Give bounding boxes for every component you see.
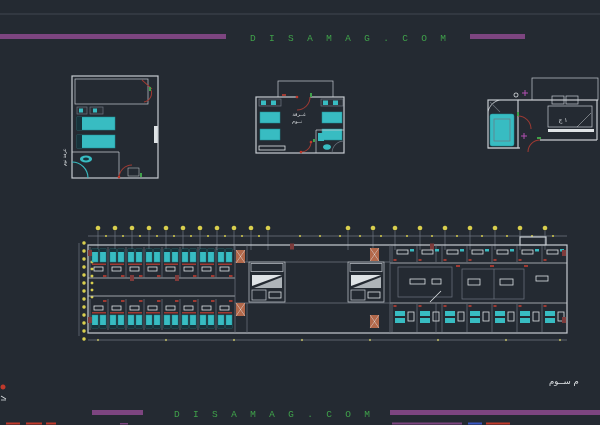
ref-cross-icon: [521, 133, 527, 139]
hotel-room-top: [198, 247, 215, 278]
grid-bubble-icon: [122, 235, 124, 237]
hotel-room-bottom: [90, 299, 107, 330]
hotel-room-bottom: [144, 299, 161, 330]
hotel-room-top: [144, 247, 161, 278]
watermark-top: DISAMAG.COM: [250, 33, 446, 44]
bed: [77, 117, 115, 130]
table: [410, 279, 425, 284]
bed: [260, 129, 280, 140]
wall-fill-block: [562, 317, 566, 323]
grid-bubble-icon: [224, 235, 226, 237]
grid-bubble-icon: [299, 235, 301, 237]
grid-bubble-icon: [96, 226, 101, 231]
grid-bubble-icon: [173, 235, 175, 237]
hotel-room-bottom: [162, 299, 179, 330]
closet-grid: [75, 79, 148, 104]
column-block: [370, 315, 379, 328]
hotel-room-bottom: [180, 299, 197, 330]
bed: [322, 129, 342, 140]
hinge-tick-icon: [517, 112, 519, 116]
grid-bubble-icon: [241, 235, 243, 237]
grid-bubble-icon: [406, 235, 408, 237]
hotel-room-top: [162, 247, 179, 278]
balcony-hatch: [278, 81, 333, 97]
bottom-banner: DISAMAG.COM: [92, 409, 600, 420]
top-rule: [0, 14, 600, 15]
grid-bubble-icon: [232, 226, 237, 231]
grid-bubble-icon: [493, 226, 498, 231]
grid-bubble-icon: [181, 226, 186, 231]
grid-bubble-icon: [443, 226, 448, 231]
table: [468, 279, 480, 285]
hinge-tick-icon: [149, 87, 151, 91]
grid-bubble-icon: [82, 321, 85, 324]
hinge-tick-icon: [140, 173, 142, 177]
room-label-line2: نــوم: [292, 119, 302, 125]
door-swing-icon: [518, 116, 531, 129]
cad-canvas: DISAMAG.COM غرفة نوم: [0, 0, 600, 425]
large-floor-plan: [79, 226, 567, 341]
grid-bubble-icon: [319, 235, 321, 237]
hotel-room-bottom-right: [392, 304, 414, 332]
right-wing-middle-rooms: [398, 265, 548, 302]
wall-fill-block: [175, 275, 179, 281]
grid-bubble-icon: [82, 241, 85, 244]
watermark-bottom: DISAMAG.COM: [174, 409, 370, 420]
banner-bar-right: [390, 410, 600, 415]
grid-bubbles-left: [82, 241, 85, 340]
hotel-room-bottom-right: [467, 304, 489, 332]
grid-bubble-icon: [190, 235, 192, 237]
grid-bubble-icon: [82, 337, 85, 340]
small-plan-left: غرفة نوم: [63, 76, 158, 178]
grid-bubble-icon: [207, 235, 209, 237]
hotel-room-bottom: [216, 299, 233, 330]
door-swing-icon: [297, 97, 310, 110]
small-plan-right: ١ ج: [488, 78, 598, 152]
column-block: [370, 248, 379, 261]
grid-bubble-icon: [456, 235, 458, 237]
grid-bubble-icon: [481, 235, 483, 237]
grid-bubble-icon: [359, 235, 361, 237]
grid-bubble-icon: [82, 289, 85, 292]
grid-bubble-icon: [393, 226, 398, 231]
sink: [318, 133, 324, 141]
hotel-room-bottom: [198, 299, 215, 330]
table: [536, 276, 548, 281]
floor-title: م ســوم: [549, 377, 579, 387]
balcony-hatch: [532, 78, 598, 100]
grid-bubble-icon: [431, 235, 433, 237]
wall-fill-block: [562, 250, 566, 256]
shower-arc: [332, 141, 344, 153]
grid-bubble-icon: [113, 226, 118, 231]
grid-bubble-icon: [543, 226, 548, 231]
grid-bubble-icon: [147, 226, 152, 231]
hotel-room-bottom-right: [442, 304, 464, 332]
hotel-room-bottom-right: [492, 304, 514, 332]
table: [500, 279, 513, 285]
stair-cores: [249, 262, 384, 302]
grid-bubble-icon: [215, 226, 220, 231]
grid-bubble-icon: [249, 226, 254, 231]
grid-bubble-icon: [380, 235, 382, 237]
ref-cross-icon: [522, 90, 528, 96]
grid-bubble-icon: [346, 226, 351, 231]
grid-bubble-icon: [371, 226, 376, 231]
hotel-room-bottom: [126, 299, 143, 330]
hotel-room-top: [108, 247, 125, 278]
room-label: ١ ج: [558, 117, 567, 124]
bench: [259, 146, 285, 150]
small-plan-middle: غــرفة نــوم: [256, 81, 344, 153]
bed: [260, 112, 280, 123]
toilet: [323, 144, 331, 150]
grid-bubbles-top: [96, 226, 548, 250]
hotel-room-top: [126, 247, 143, 278]
right-wing-bottom-rooms: [392, 304, 564, 332]
grid-bubble-icon: [139, 235, 141, 237]
corridor-left: [88, 278, 235, 296]
grid-bubble-icon: [91, 282, 94, 285]
grid-bubble-icon: [418, 226, 423, 231]
door-swing-icon: [301, 142, 311, 152]
hinge-tick-icon: [537, 137, 541, 139]
cad-viewport: DISAMAG.COM غرفة نوم: [0, 0, 600, 425]
grid-bubble-icon: [164, 226, 169, 231]
grid-bubble-icon: [82, 297, 85, 300]
shower-arc: [72, 162, 88, 178]
door-leaf: [128, 168, 139, 176]
door-swing-icon: [528, 140, 540, 152]
grid-bubble-icon: [156, 235, 158, 237]
grid-bubble-icon: [82, 313, 85, 316]
wall-fill-block: [130, 275, 134, 281]
wall-fill-block: [88, 250, 92, 256]
left-wing-bottom-rooms: [90, 299, 233, 330]
grid-bubbles-left-inner: [91, 261, 94, 299]
grid-bubble-icon: [339, 235, 341, 237]
grid-bubble-icon: [468, 226, 473, 231]
hinge-tick-icon: [310, 93, 312, 97]
left-wing-top-rooms: [90, 247, 233, 278]
wall-fill-block: [88, 317, 92, 323]
grid-bubble-icon: [82, 329, 85, 332]
grid-bubble-icon: [82, 249, 85, 252]
hotel-room-top: [216, 247, 233, 278]
hotel-room-top: [180, 247, 197, 278]
top-banner: DISAMAG.COM: [0, 33, 525, 44]
grid-bubble-icon: [105, 235, 107, 237]
bed: [548, 106, 592, 127]
grid-bubble-icon: [91, 268, 94, 271]
grid-bubble-icon: [130, 226, 135, 231]
grid-bubble-icon: [258, 235, 260, 237]
window-sill: [154, 126, 158, 143]
room-side-label: غرفة نوم: [63, 148, 68, 166]
bed: [77, 135, 115, 148]
banner-bar-left: [0, 34, 226, 39]
room-label-line1: غــرفة: [292, 112, 306, 118]
stair-core: [348, 262, 384, 302]
grid-bubble-icon: [82, 305, 85, 308]
grid-bubble-icon: [82, 265, 85, 268]
grid-bubble-icon: [552, 235, 554, 237]
hotel-room-bottom: [108, 299, 125, 330]
right-wing-top-rooms: [392, 246, 564, 262]
column-block: [236, 250, 245, 263]
grid-bubble-icon: [91, 275, 94, 278]
grid-bubble-icon: [506, 235, 508, 237]
grid-bubble-icon: [82, 281, 85, 284]
grid-bubble-icon: [82, 273, 85, 276]
bed: [322, 112, 342, 123]
table: [432, 279, 441, 284]
wall-fill-block: [290, 244, 294, 250]
wall-fill-block: [430, 244, 434, 250]
banner-bar-right: [470, 34, 525, 39]
grid-bubble-icon: [198, 226, 203, 231]
grid-bubble-icon: [82, 257, 85, 260]
hotel-room-bottom-right: [517, 304, 539, 332]
door-leaf: [430, 291, 441, 302]
hotel-room-bottom-right: [542, 304, 564, 332]
banner-bar-left: [92, 410, 143, 415]
stair-core: [249, 262, 285, 302]
grid-bubble-icon: [266, 226, 271, 231]
grid-bubble-icon: [91, 289, 94, 292]
hinge-tick-icon: [313, 139, 315, 142]
grid-bubble-icon: [518, 226, 523, 231]
column-block: [236, 303, 245, 316]
